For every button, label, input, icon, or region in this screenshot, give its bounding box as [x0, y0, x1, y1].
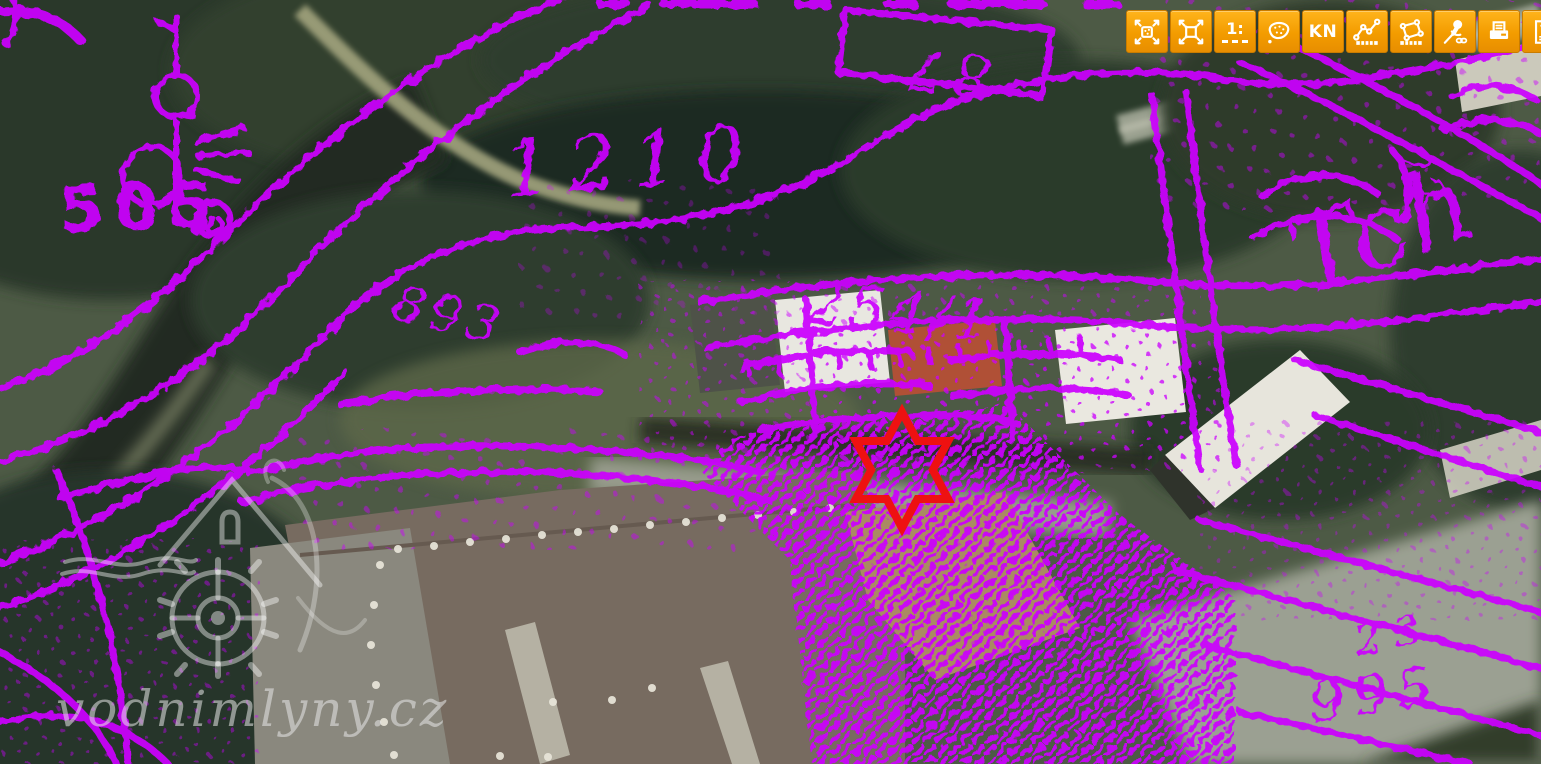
- zoom-box-extent-button[interactable]: [1170, 10, 1212, 53]
- measure-distance-button[interactable]: [1346, 10, 1388, 53]
- area-select-icon: [1264, 17, 1294, 47]
- scale-button[interactable]: 1:: [1214, 10, 1256, 53]
- zoom-box-extent-icon: [1176, 17, 1206, 47]
- area-select-button[interactable]: [1258, 10, 1300, 53]
- help-icon: ?: [1528, 17, 1541, 47]
- map-toolbar: 1: KN: [1126, 10, 1541, 53]
- cadastre-button[interactable]: KN: [1302, 10, 1344, 53]
- help-button[interactable]: ?: [1522, 10, 1541, 53]
- measure-area-button[interactable]: [1390, 10, 1432, 53]
- print-button[interactable]: [1478, 10, 1520, 53]
- watermark-text: vodnimlyny.cz: [56, 680, 449, 738]
- print-icon: [1484, 17, 1514, 47]
- parcel-label-505: 505: [58, 168, 224, 248]
- scale-label: 1:: [1226, 21, 1244, 37]
- parcel-label-1210: 1210: [500, 107, 763, 214]
- map-viewport[interactable]: 505 1210 87 254/1 893 Tch 22 23 995: [0, 0, 1541, 764]
- measure-distance-icon: [1352, 17, 1382, 47]
- cadastre-label: KN: [1309, 22, 1337, 42]
- map-canvas[interactable]: 505 1210 87 254/1 893 Tch 22 23 995: [0, 0, 1541, 764]
- zoom-full-extent-button[interactable]: [1126, 10, 1168, 53]
- pin-link-button[interactable]: [1434, 10, 1476, 53]
- zoom-full-extent-icon: [1132, 17, 1162, 47]
- measure-area-icon: [1396, 17, 1426, 47]
- parcel-label-87: 87: [897, 33, 994, 111]
- scale-dash-icon: [1222, 40, 1248, 43]
- pin-link-icon: [1440, 17, 1470, 47]
